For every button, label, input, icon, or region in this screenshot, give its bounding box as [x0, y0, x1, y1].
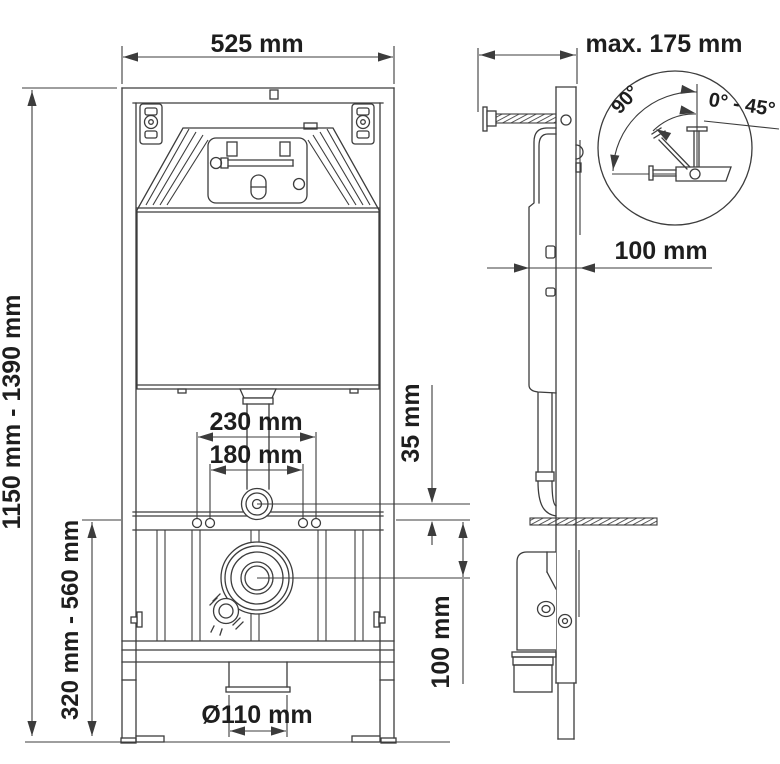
side-clip-left — [131, 612, 142, 627]
drain-stub — [226, 662, 290, 692]
wall-bracket-left — [140, 104, 162, 144]
stud-rod — [530, 518, 657, 525]
foot-left — [121, 680, 164, 743]
dim-label-frame-height-range: 1150 mm - 1390 mm — [0, 295, 26, 530]
dim-drain-diameter: Ø110 mm — [201, 695, 312, 737]
wall-rail — [556, 87, 583, 683]
side-view: max. 175 mm 100 mm — [478, 30, 779, 739]
drain-elbow-boot — [517, 552, 572, 650]
arrowhead — [27, 91, 36, 106]
dim-label-stud-spacing-inner: 180 mm — [209, 441, 302, 469]
arrowhead — [580, 263, 595, 272]
dim-label-drain-offset: 100 mm — [427, 595, 455, 688]
access-panel — [208, 138, 307, 203]
anchor-angle-detail: 90° 0° - 45° — [598, 71, 779, 225]
arrowhead — [87, 523, 96, 538]
arrowhead — [378, 52, 393, 61]
front-view: 525 mm 1150 mm - 1390 mm 320 mm - 560 mm… — [0, 30, 470, 743]
bottom-crossbar — [122, 641, 394, 662]
dim-label-max-depth: max. 175 mm — [585, 30, 742, 58]
arrowhead — [87, 721, 96, 736]
arrowhead — [560, 50, 575, 59]
wall-bracket-right — [352, 104, 374, 144]
flush-elbow — [536, 393, 556, 516]
detail-anchor-plate — [676, 167, 731, 181]
dim-label-supply-offset: 35 mm — [397, 383, 425, 462]
cistern-profile — [529, 128, 556, 393]
dim-frame-width: 525 mm — [122, 30, 394, 84]
arrowhead — [514, 263, 529, 272]
arrowhead — [427, 488, 436, 503]
dim-label-stud-spacing-outer: 230 mm — [209, 408, 302, 436]
arrowhead — [123, 52, 138, 61]
arrowhead — [458, 561, 467, 576]
rail-foot — [556, 683, 576, 739]
arrowhead — [458, 523, 467, 538]
dim-label-wall-clearance: 100 mm — [614, 237, 707, 265]
side-clip-right — [374, 612, 385, 627]
installation-frame-drawing: 525 mm 1150 mm - 1390 mm 320 mm - 560 mm… — [0, 0, 780, 764]
dim-label-drain-diameter: Ø110 mm — [201, 701, 312, 729]
dim-label-bowl-height-range: 320 mm - 560 mm — [57, 520, 84, 720]
arrowhead — [427, 521, 436, 536]
dim-wall-clearance: 100 mm — [487, 237, 712, 273]
technical-drawing-canvas: 525 mm 1150 mm - 1390 mm 320 mm - 560 mm… — [0, 0, 780, 764]
dim-label-frame-width: 525 mm — [210, 30, 303, 58]
arrowhead — [480, 50, 495, 59]
anchor-bolt — [483, 107, 556, 131]
foot-right — [352, 680, 396, 743]
arrowhead — [27, 721, 36, 736]
outlet-collar — [512, 652, 556, 692]
dim-bowl-height-range: 320 mm - 560 mm — [57, 520, 121, 736]
